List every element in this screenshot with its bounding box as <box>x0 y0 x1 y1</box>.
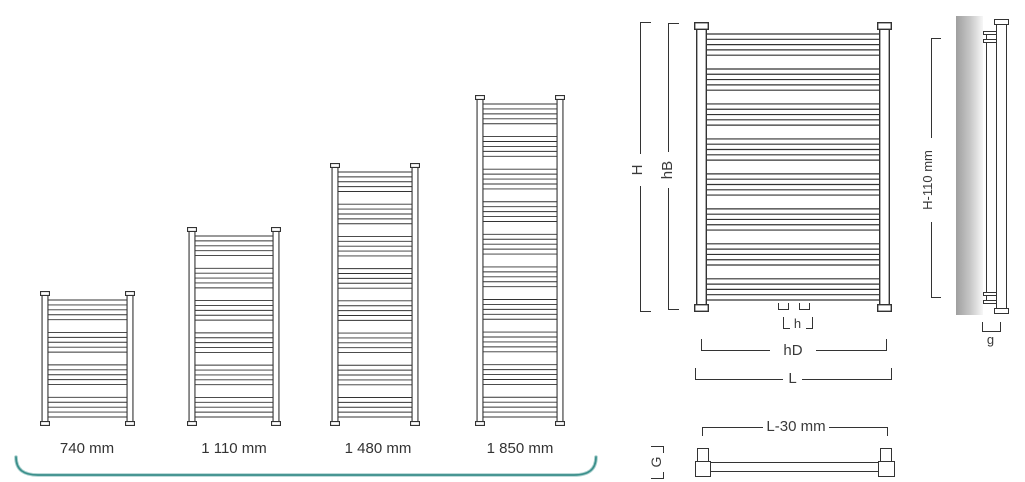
dim-L-line-right <box>802 379 891 380</box>
dim-L30-line-left <box>702 427 763 428</box>
dim-L-tick-right <box>891 368 892 380</box>
dim-hB-tick-bottom <box>668 309 679 310</box>
dim-H110-line-lower <box>931 222 932 298</box>
dim-L30-label: L-30 mm <box>763 419 829 435</box>
dim-hD-line-left <box>701 350 770 351</box>
dim-L30-line-right <box>829 427 887 428</box>
radiator-front-1850 <box>475 95 565 426</box>
dim-H-tick-bottom <box>640 311 651 312</box>
dim-H110-tick-bottom <box>931 297 941 298</box>
connection-stub-left <box>778 303 789 310</box>
dim-G-tick-bottom <box>651 472 664 479</box>
dim-g-bracket <box>982 322 1001 332</box>
radiator-front-1480 <box>330 163 420 426</box>
dim-H110-label: H-110 mm <box>921 135 937 225</box>
side-view-rail-profile <box>996 22 1007 311</box>
wall-bracket-top-2 <box>983 39 997 43</box>
dim-hB-line-lower <box>668 188 669 310</box>
top-view-block-left-lower <box>695 461 711 477</box>
dim-h-label: h <box>787 317 808 331</box>
dim-H110-line-upper <box>931 38 932 138</box>
side-view-cap-bottom <box>994 308 1009 314</box>
dim-hB-label: hB <box>660 155 678 185</box>
dim-L30-tick-left <box>702 427 703 436</box>
radiator-dimension-diagram: 740 mm 1 110 mm 1 480 mm 1 850 mm H hB h… <box>0 0 1025 482</box>
bracket-halo <box>16 457 596 475</box>
dim-G-label: G <box>648 452 664 472</box>
dim-L30-tick-right <box>887 427 888 436</box>
dim-hD-tick-right <box>886 339 887 351</box>
dim-H-tick-top <box>640 22 651 23</box>
wall-bracket-top-1 <box>983 31 997 35</box>
wall-bracket-bottom-1 <box>983 292 997 296</box>
dim-H-line-upper <box>640 22 641 154</box>
top-view-block-right-lower <box>878 461 895 477</box>
size-range-bracket <box>12 452 600 480</box>
side-view-back-rail <box>986 31 987 304</box>
top-view-tube <box>709 462 881 472</box>
dim-g-label: g <box>982 333 999 347</box>
wall-surface <box>956 16 983 315</box>
dim-H-label: H <box>630 160 648 180</box>
dim-L-label: L <box>783 371 802 387</box>
dim-H110-tick-top <box>931 38 941 39</box>
dim-hB-tick-top <box>668 23 679 24</box>
radiator-front-740 <box>40 291 135 426</box>
side-view-cap-top <box>994 19 1009 25</box>
dim-L-line-left <box>695 379 783 380</box>
front-view-radiator <box>694 22 892 312</box>
dim-hD-line-right <box>816 350 886 351</box>
bracket-line <box>16 457 596 475</box>
dim-hD-label: hD <box>770 343 816 359</box>
radiator-front-1110 <box>187 227 281 426</box>
dim-hB-line-upper <box>668 23 669 152</box>
wall-bracket-bottom-2 <box>983 300 997 304</box>
connection-stub-right <box>799 303 810 310</box>
dim-H-line-lower <box>640 186 641 312</box>
